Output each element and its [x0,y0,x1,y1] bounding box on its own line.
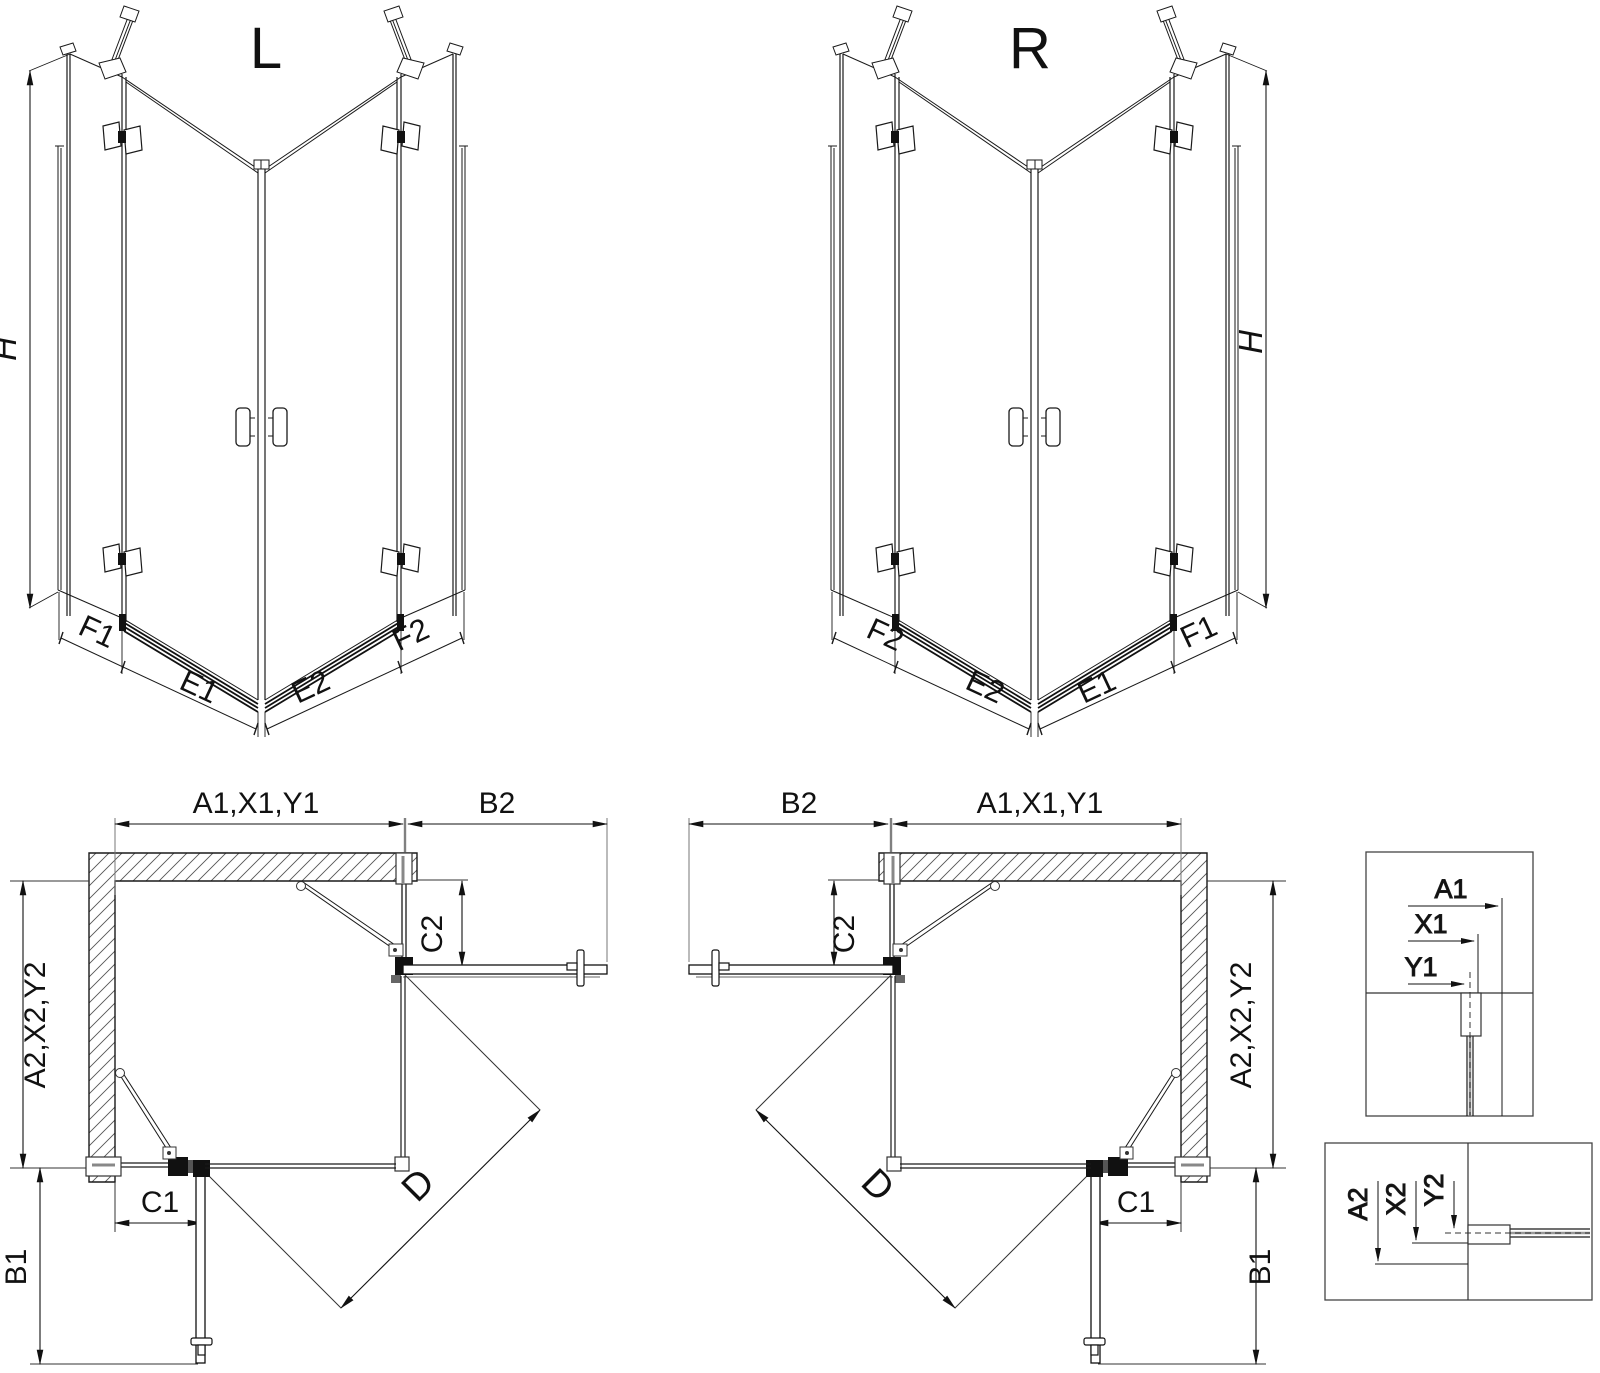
detail-depth-y2-label: Y2 [1419,1173,1449,1206]
plan-right-walls [879,853,1207,1182]
technical-drawing-page: L H F1 E1 E2 F2 R H F2 E2 E1 F1 A1,X1,Y1… [0,0,1600,1373]
plan-right-c2-label: C2 [828,915,861,953]
plan-right-top-width-label: A1,X1,Y1 [977,787,1104,820]
plan-left-c2-label: C2 [416,915,449,953]
plan-left-c1-label: C1 [141,1186,179,1219]
detail-width-x1-label: X1 [1414,909,1447,939]
detail-inset-width: A1 X1 Y1 [1366,852,1533,1116]
detail-depth-x2-label: X2 [1381,1182,1411,1215]
iso-right-title: R [1009,16,1051,81]
detail-width-y1-label: Y1 [1404,952,1437,982]
plan-left-walls [89,853,417,1182]
iso-view-left: L H F1 E1 E2 F2 [0,6,468,737]
plan-left-side-depth-label: A2,X2,Y2 [19,962,52,1089]
plan-right-side-depth-label: A2,X2,Y2 [1225,962,1258,1089]
iso-left-height-label: H [0,337,23,361]
iso-view-right: R H F2 E2 E1 F1 [828,6,1269,737]
plan-left-top-width-label: A1,X1,Y1 [193,787,320,820]
iso-right-dim-e1: E1 [1072,663,1121,711]
detail-inset-depth: A2 X2 Y2 [1325,1143,1592,1300]
iso-left-dim-f2: F2 [387,611,435,658]
detail-width-a1-label: A1 [1434,874,1467,904]
plan-left-b1-label: B1 [0,1249,33,1286]
iso-left-dim-e1: E1 [175,663,224,711]
plan-view-right: B2 A1,X1,Y1 C2 A2,X2,Y2 C1 B1 D [689,787,1286,1364]
plan-right-b1-label: B1 [1244,1249,1277,1286]
detail-depth-a2-label: A2 [1343,1187,1373,1220]
plan-right-door-width-label: B2 [781,787,818,820]
iso-right-height-label: H [1232,330,1269,354]
plan-left-door-width-label: B2 [479,787,516,820]
shower-enclosure-drawing: L H F1 E1 E2 F2 R H F2 E2 E1 F1 A1,X1,Y1… [0,0,1600,1373]
iso-right-dim-f2: F2 [862,611,910,658]
plan-view-left: A1,X1,Y1 B2 C2 A2,X2,Y2 C1 B1 D [0,787,607,1364]
iso-left-title: L [250,16,282,81]
plan-right-c1-label: C1 [1117,1186,1155,1219]
